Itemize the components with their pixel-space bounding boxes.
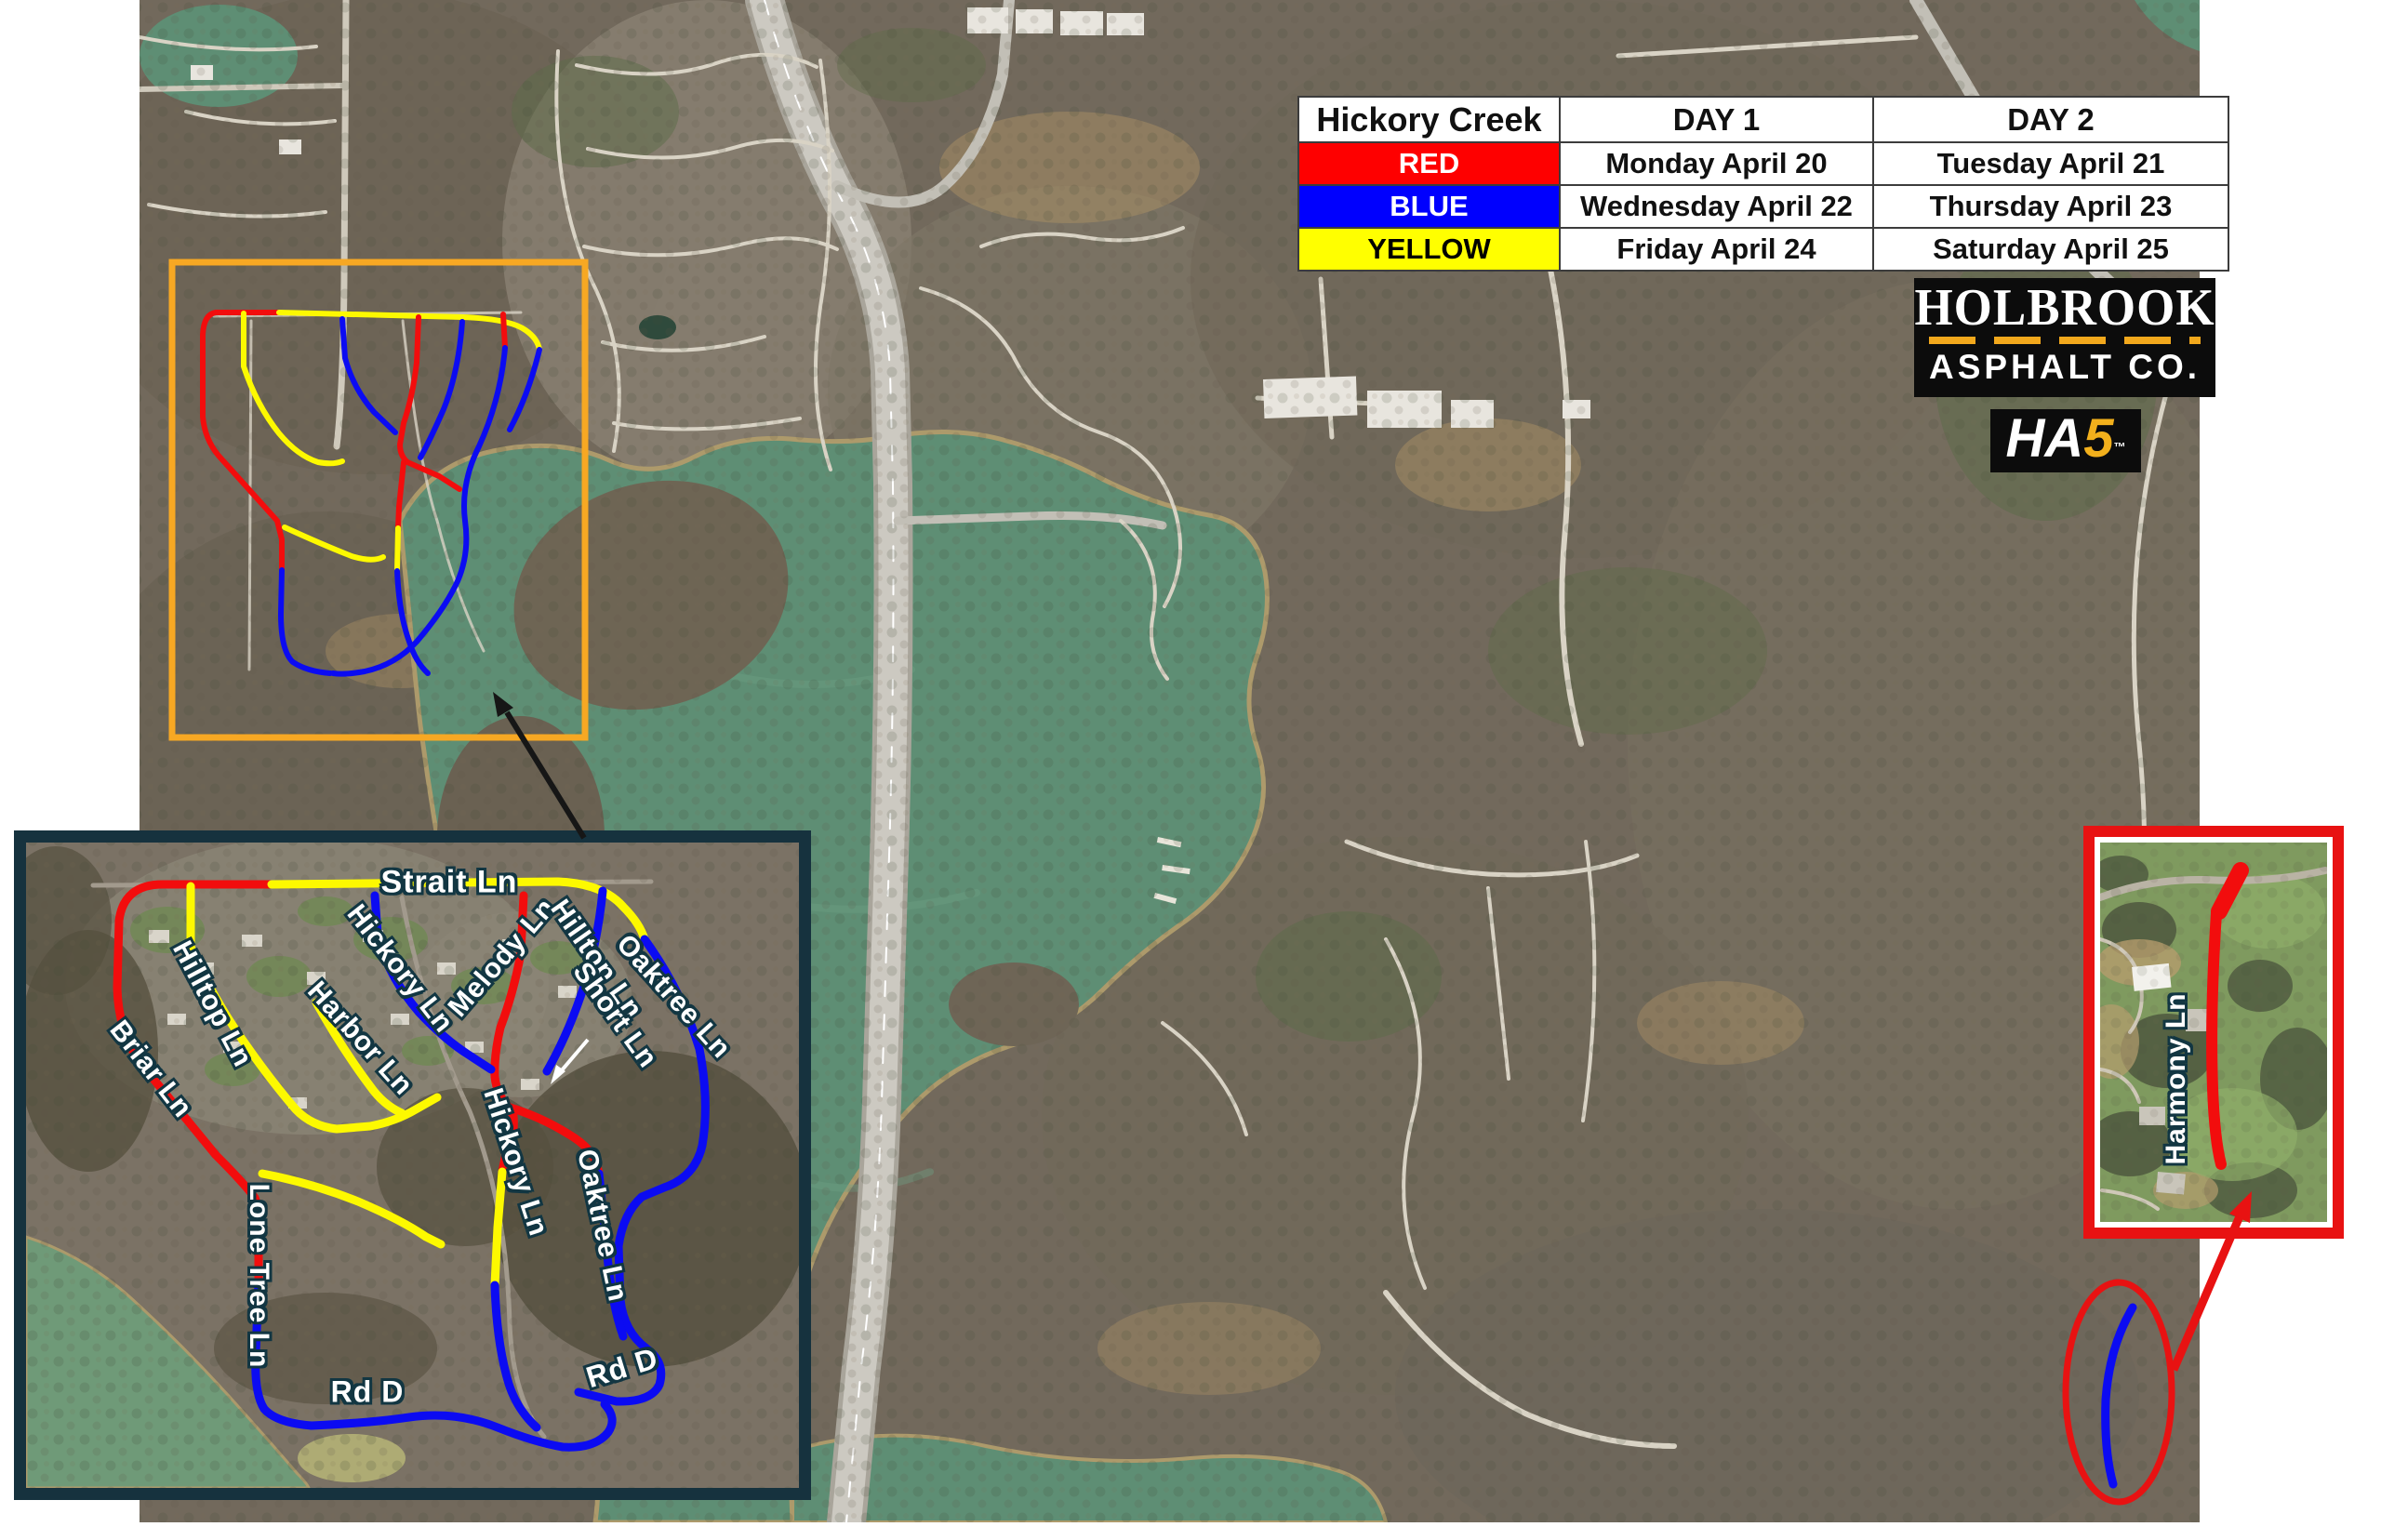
yellow-day2-cell: Saturday April 25 (1873, 228, 2228, 271)
ha5-ha-text: HA (2005, 408, 2083, 469)
blue-day1-cell: Wednesday April 22 (1560, 185, 1873, 228)
blue-day2-cell: Thursday April 23 (1873, 185, 2228, 228)
schedule-row-blue: BLUE Wednesday April 22 Thursday April 2… (1298, 185, 2228, 228)
ha5-logo: HA5™ (1990, 409, 2141, 472)
street-label-harmony: Harmony Ln (2161, 992, 2192, 1164)
schedule-col-day2: DAY 2 (1873, 97, 2228, 142)
street-label-lone-tree: Lone Tree Ln (243, 1184, 274, 1369)
holbrook-asphalt-logo: HOLBROOK ASPHALT CO. (1914, 278, 2215, 397)
trademark-symbol: ™ (2114, 440, 2126, 454)
harmony-inset-art (2100, 843, 2327, 1222)
detail-inset-map (14, 830, 811, 1500)
holbrook-wordmark: HOLBROOK (1914, 281, 2215, 336)
red-day2-cell: Tuesday April 21 (1873, 142, 2228, 185)
dashed-road-divider (1929, 337, 2201, 344)
asphalt-co-wordmark: ASPHALT CO. (1914, 349, 2215, 386)
schedule-table: Hickory Creek DAY 1 DAY 2 RED Monday Apr… (1297, 96, 2229, 272)
schedule-title: Hickory Creek (1298, 97, 1560, 142)
detail-inset-art (26, 843, 799, 1488)
flyer-canvas: Strait Ln Hilltop Ln Briar Ln Harbor Ln … (0, 0, 2381, 1540)
harmony-inset-map (2083, 826, 2344, 1239)
schedule-row-red: RED Monday April 20 Tuesday April 21 (1298, 142, 2228, 185)
yellow-day1-cell: Friday April 24 (1560, 228, 1873, 271)
schedule-header-row: Hickory Creek DAY 1 DAY 2 (1298, 97, 2228, 142)
yellow-legend-cell: YELLOW (1298, 228, 1560, 271)
ha5-five-text: 5 (2083, 408, 2113, 469)
schedule-row-yellow: YELLOW Friday April 24 Saturday April 25 (1298, 228, 2228, 271)
street-label-strait: Strait Ln (381, 865, 518, 901)
street-label-rd-d-left: Rd D (331, 1375, 405, 1410)
red-day1-cell: Monday April 20 (1560, 142, 1873, 185)
schedule-col-day1: DAY 1 (1560, 97, 1873, 142)
blue-legend-cell: BLUE (1298, 185, 1560, 228)
red-legend-cell: RED (1298, 142, 1560, 185)
